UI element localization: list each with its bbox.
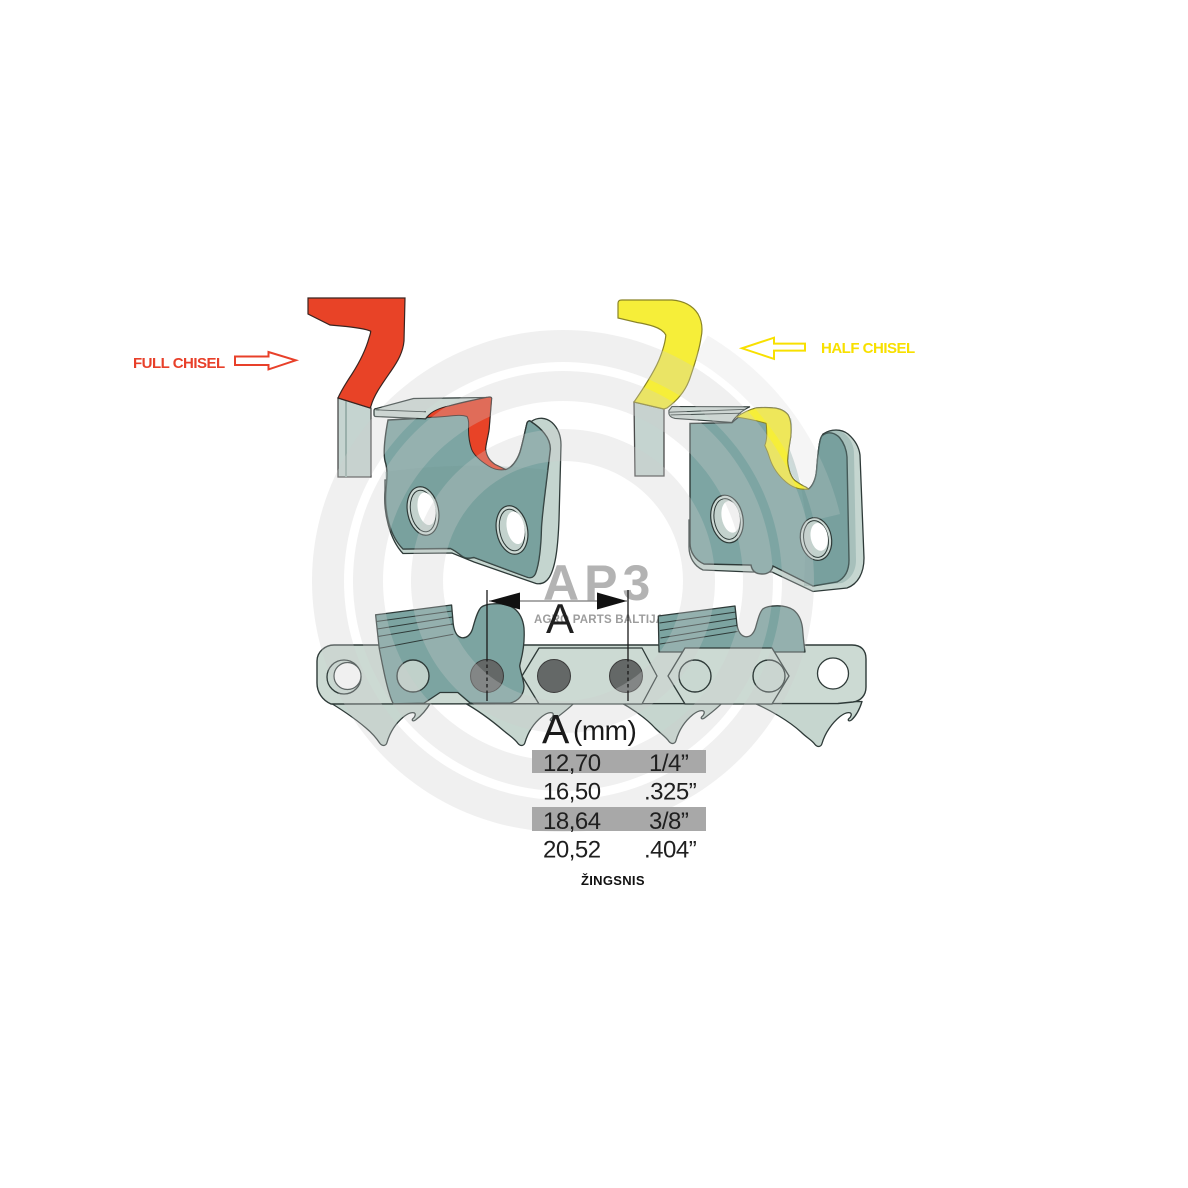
svg-text:20,52: 20,52 xyxy=(543,837,601,864)
svg-text:A: A xyxy=(542,706,570,752)
svg-text:1/4”: 1/4” xyxy=(649,750,689,777)
svg-text:HALF CHISEL: HALF CHISEL xyxy=(821,340,915,357)
svg-text:3/8”: 3/8” xyxy=(649,808,689,835)
svg-text:.325”: .325” xyxy=(644,779,697,806)
svg-text:ŽINGSNIS: ŽINGSNIS xyxy=(581,873,645,888)
svg-text:18,64: 18,64 xyxy=(543,808,601,835)
svg-text:12,70: 12,70 xyxy=(543,750,601,777)
svg-text:FULL CHISEL: FULL CHISEL xyxy=(133,355,225,372)
svg-text:(mm): (mm) xyxy=(573,715,636,746)
svg-text:16,50: 16,50 xyxy=(543,779,601,806)
svg-text:A: A xyxy=(546,595,574,642)
svg-text:.404”: .404” xyxy=(644,837,697,864)
